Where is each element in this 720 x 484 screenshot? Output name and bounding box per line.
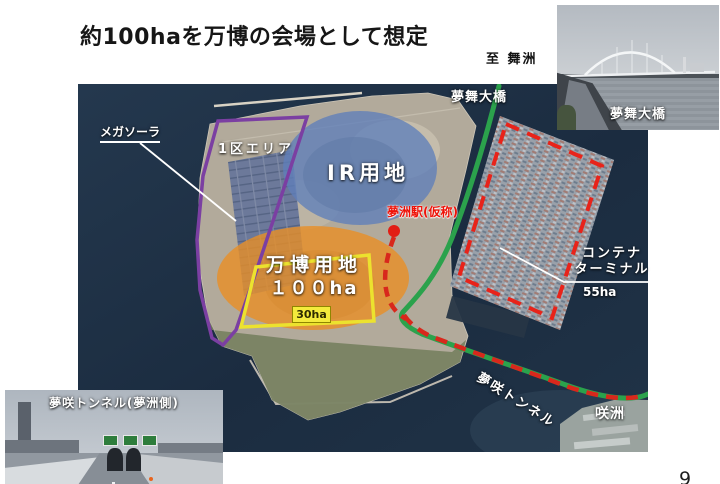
- tunnel-portal: [126, 448, 141, 470]
- sakishima-label: 咲洲: [595, 403, 625, 423]
- station-label: 夢洲駅(仮称): [387, 203, 458, 220]
- bridge-map-label: 夢舞大橋: [451, 86, 507, 105]
- mega-solar-label: メガソーラ: [100, 123, 160, 143]
- expo-site-name: 万博用地: [240, 254, 388, 278]
- container-terminal-label: コンテナ ターミナル: [564, 246, 660, 277]
- road-sign: [123, 435, 138, 446]
- tunnel-portal: [107, 448, 122, 470]
- page-number: 9: [679, 468, 691, 484]
- expo-site-label: 万博用地 １００ha: [240, 254, 388, 300]
- photo-yumesaki-tunnel: 夢咲トンネル(夢洲側): [5, 390, 223, 484]
- slide: 約100haを万博の会場として想定 至 舞洲: [0, 0, 720, 484]
- road-sign: [142, 435, 157, 446]
- container-area-label: 55ha: [583, 285, 616, 299]
- photo-caption-tunnel: 夢咲トンネル(夢洲側): [5, 394, 223, 411]
- traffic-cone: [149, 477, 153, 481]
- container-terminal-line1: コンテナ: [564, 246, 660, 262]
- container-terminal-line2: ターミナル: [564, 262, 660, 278]
- core-area-badge: 30ha: [292, 306, 331, 323]
- area1-label: 1区エリア: [218, 138, 294, 157]
- road-sign: [103, 435, 118, 446]
- ir-site-label: IR用地: [327, 157, 409, 187]
- photo-caption-bridge: 夢舞大橋: [557, 103, 719, 122]
- station-dot: [388, 225, 400, 237]
- page-title: 約100haを万博の会場として想定: [80, 19, 428, 51]
- photo-yumemai-bridge: 夢舞大橋: [557, 5, 719, 130]
- direction-label-maishima: 至 舞洲: [486, 48, 538, 67]
- expo-site-area: １００ha: [240, 278, 388, 301]
